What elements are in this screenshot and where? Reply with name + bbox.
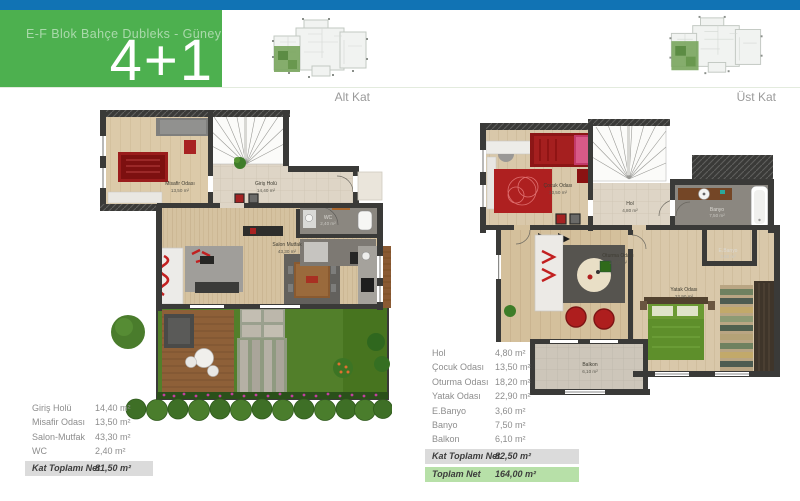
table-row: Banyo 7,50 m²	[425, 418, 579, 432]
room-area-label: 2,40 m²	[320, 221, 336, 226]
room-label: Hol	[626, 201, 634, 207]
room-area-label: 18,20 m²	[609, 260, 628, 265]
row-label: Giriş Holü	[32, 403, 72, 413]
total-label: Toplam Net	[432, 469, 481, 479]
unit-type-label: 4+1	[0, 32, 214, 90]
row-label: WC	[32, 446, 47, 456]
table-row: Salon-Mutfak 43,30 m²	[25, 430, 153, 444]
room-label: Yatak Odası	[670, 287, 697, 293]
deck	[162, 310, 234, 394]
flower-bed	[157, 392, 388, 399]
row-value: 43,30 m²	[95, 430, 131, 444]
room-oturma	[500, 230, 632, 342]
row-value: 2,40 m²	[95, 444, 126, 458]
site-plan-thumbnail-alt-kat	[268, 16, 372, 82]
ust-kat-area-table: Hol 4,80 m² Çocuk Odası 13,50 m² Oturma …	[425, 346, 579, 482]
row-value: 6,10 m²	[495, 432, 526, 446]
room-area-label: 7,50 m²	[709, 213, 725, 218]
row-label: Balkon	[432, 434, 460, 444]
row-value: 4,80 m²	[495, 346, 526, 360]
row-value: 7,50 m²	[495, 418, 526, 432]
floor-total-row: Kat Toplamı Net 81,50 m²	[25, 461, 153, 476]
stone-path	[237, 308, 287, 396]
row-value: 13,50 m²	[95, 415, 131, 429]
room-area-label: 22,90 m²	[675, 294, 694, 299]
table-row: Balkon 6,10 m²	[425, 432, 579, 446]
brochure-page: E-F Blok Bahçe Dubleks - Güney Ön 4+1	[0, 0, 800, 501]
room-label: Balkon	[582, 362, 598, 368]
row-value: 22,90 m²	[495, 389, 531, 403]
room-label: Salon Mutfak	[272, 242, 302, 248]
floor-label-ust-kat: Üst Kat	[676, 90, 776, 104]
row-value: 14,40 m²	[95, 401, 131, 415]
room-label: Misafir Odası	[165, 181, 194, 187]
room-label: Oturma Odası	[602, 253, 633, 259]
row-value: 18,20 m²	[495, 375, 531, 389]
row-label: Oturma Odası	[432, 377, 489, 387]
row-label: Salon-Mutfak	[32, 432, 85, 442]
total-value: 164,00 m²	[495, 467, 536, 482]
table-row: E.Banyo 3,60 m²	[425, 404, 579, 418]
stairs	[592, 125, 666, 181]
table-row: WC 2,40 m²	[25, 444, 153, 458]
garden	[157, 306, 390, 399]
room-wc	[300, 206, 377, 235]
row-label: Yatak Odası	[432, 391, 481, 401]
room-misafir	[104, 116, 212, 206]
highlighted-unit	[671, 41, 698, 70]
highlighted-unit	[274, 46, 300, 72]
room-area-label: 4,80 m²	[622, 208, 638, 213]
stairs	[208, 112, 284, 169]
header-box: E-F Blok Bahçe Dubleks - Güney Ön 4+1	[0, 10, 222, 88]
row-label: Banyo	[432, 420, 458, 430]
alt-kat-area-table: Giriş Holü 14,40 m² Misafir Odası 13,50 …	[25, 401, 153, 476]
row-label: Misafir Odası	[32, 417, 85, 427]
room-area-label: 3,60 m²	[720, 254, 736, 259]
total-value: 81,50 m²	[95, 461, 131, 476]
room-cocuk	[484, 129, 592, 227]
room-area-label: 13,50 m²	[549, 190, 568, 195]
room-area-label: 13,50 m²	[171, 188, 190, 193]
total-label: Kat Toplamı Net	[32, 463, 100, 473]
table-row: Çocuk Odası 13,50 m²	[425, 360, 579, 374]
grand-total-row: Toplam Net 164,00 m²	[425, 467, 579, 482]
floor-label-alt-kat: Alt Kat	[270, 90, 370, 104]
total-value: 82,50 m²	[495, 449, 531, 464]
floor-plan-alt-kat: Misafir Odası 13,50 m² Giriş Holü 14,40 …	[100, 106, 392, 432]
table-row: Misafir Odası 13,50 m²	[25, 415, 153, 429]
table-row: Yatak Odası 22,90 m²	[425, 389, 579, 403]
header-divider	[0, 87, 800, 88]
total-label: Kat Toplamı Net	[432, 451, 500, 461]
room-area-label: 14,40 m²	[257, 188, 276, 193]
row-value: 3,60 m²	[495, 404, 526, 418]
floor-total-row: Kat Toplamı Net 82,50 m²	[425, 449, 579, 464]
room-label: Çocuk Odası	[544, 183, 573, 189]
row-label: E.Banyo	[432, 406, 466, 416]
table-row: Giriş Holü 14,40 m²	[25, 401, 153, 415]
site-plan-thumbnail-ust-kat	[660, 14, 772, 78]
table-row: Oturma Odası 18,20 m²	[425, 375, 579, 389]
row-label: Çocuk Odası	[432, 362, 484, 372]
table-row: Hol 4,80 m²	[425, 346, 579, 360]
room-label: Giriş Holü	[255, 181, 277, 187]
row-label: Hol	[432, 348, 446, 358]
row-value: 13,50 m²	[495, 360, 531, 374]
room-area-label: 6,10 m²	[582, 369, 598, 374]
room-area-label: 43,30 m²	[278, 249, 297, 254]
top-accent-bar	[0, 0, 800, 10]
striped-rug	[720, 285, 753, 371]
